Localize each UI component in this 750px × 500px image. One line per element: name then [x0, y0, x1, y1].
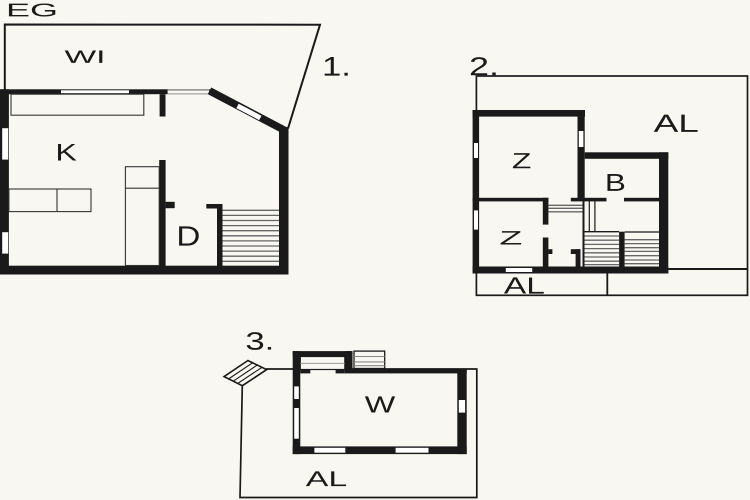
svg-text:K: K: [55, 140, 77, 167]
svg-text:EG: EG: [6, 0, 58, 20]
svg-text:AL: AL: [306, 467, 348, 491]
svg-text:3.: 3.: [245, 328, 274, 356]
svg-text:AL: AL: [504, 273, 545, 299]
svg-text:W: W: [365, 391, 397, 417]
svg-text:Z: Z: [512, 148, 532, 173]
svg-text:WI: WI: [64, 47, 105, 67]
svg-text:AL: AL: [654, 110, 699, 138]
svg-text:1.: 1.: [322, 52, 351, 82]
svg-text:B: B: [605, 170, 626, 197]
svg-text:D: D: [176, 221, 200, 252]
svg-text:Z: Z: [499, 228, 522, 250]
